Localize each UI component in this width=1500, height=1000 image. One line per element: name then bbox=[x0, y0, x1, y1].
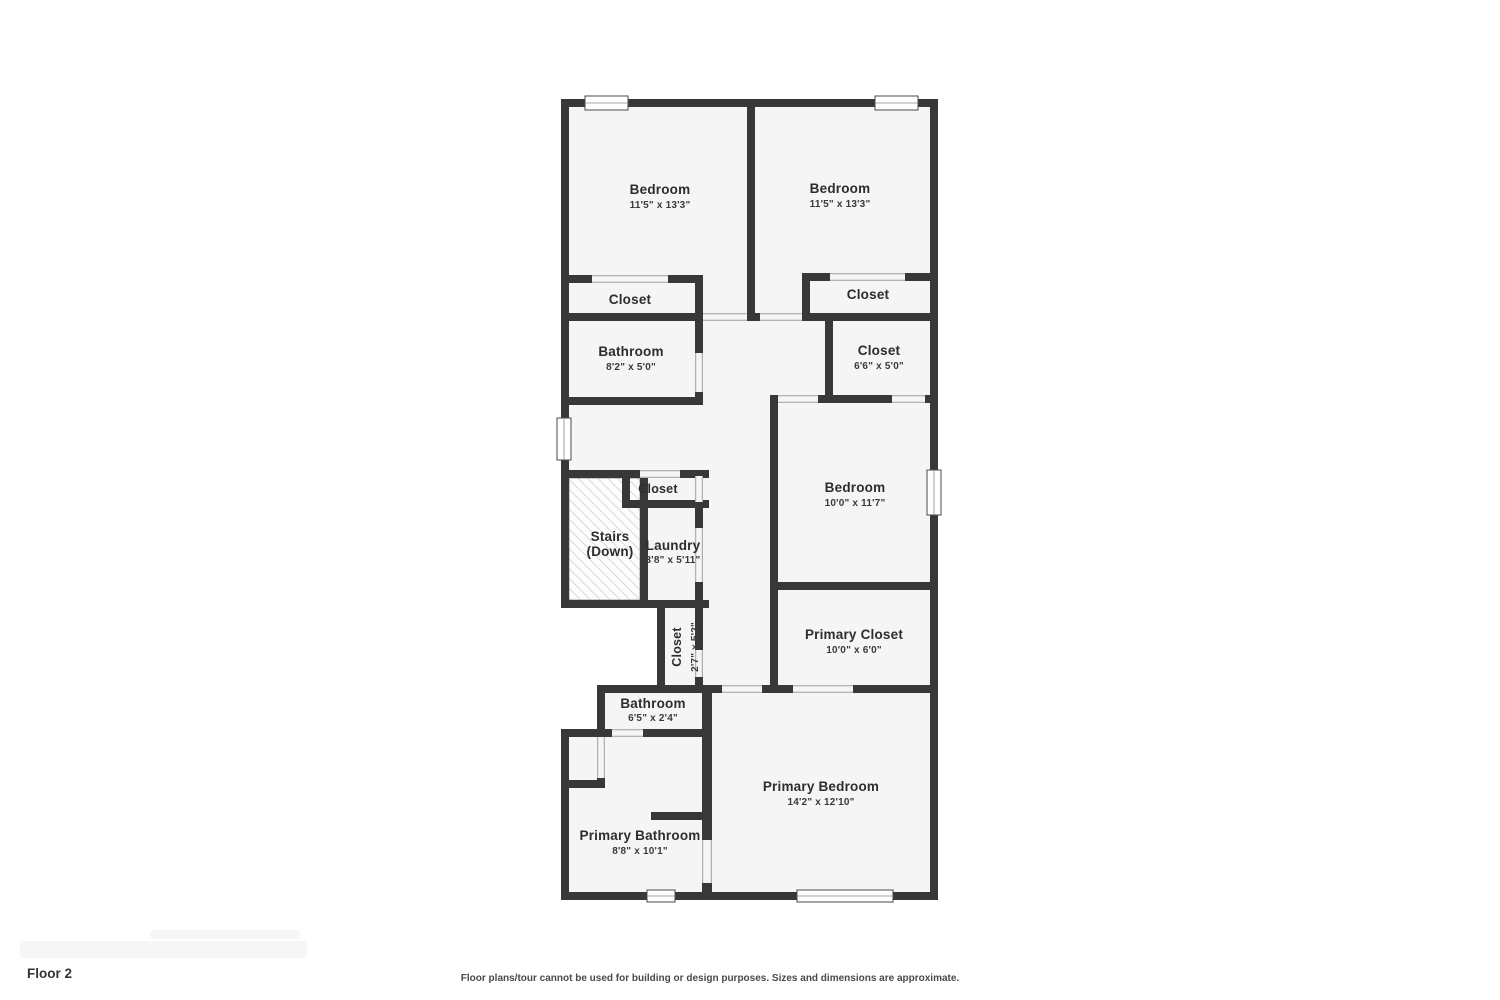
bedroom-top-right-dims: 11'5" x 13'3" bbox=[810, 199, 871, 210]
bedroom-top-left-dims: 11'5" x 13'3" bbox=[630, 200, 691, 211]
laundry-dims: 3'8" x 5'11" bbox=[645, 555, 700, 566]
bedroom-top-left-label: Bedroom bbox=[630, 182, 691, 197]
primary-bathroom-label: Primary Bathroom bbox=[580, 828, 701, 843]
bathroom-small-dims: 6'5" x 2'4" bbox=[628, 713, 678, 724]
closet-hall-label: Closet bbox=[638, 482, 678, 496]
primary-bathroom-dims: 8'8" x 10'1" bbox=[612, 846, 668, 857]
primary-closet-dims: 10'0" x 6'0" bbox=[826, 645, 882, 656]
floorplan-svg: Bedroom 11'5" x 13'3" Bedroom 11'5" x 13… bbox=[0, 0, 1500, 1000]
closet-top-right-label: Closet bbox=[847, 287, 890, 302]
bathroom-upper-dims: 8'2" x 5'0" bbox=[606, 362, 656, 373]
bathroom-upper-label: Bathroom bbox=[598, 344, 663, 359]
bedroom-top-right-label: Bedroom bbox=[810, 181, 871, 196]
closet-vertical-dims: 2'7" x 5'2" bbox=[690, 622, 701, 672]
bedroom-middle-label: Bedroom bbox=[825, 480, 886, 495]
primary-bedroom-dims: 14'2" x 12'10" bbox=[787, 797, 854, 808]
primary-bedroom-label: Primary Bedroom bbox=[763, 779, 879, 794]
closet-vertical-label: Closet bbox=[670, 627, 684, 667]
primary-closet-label: Primary Closet bbox=[805, 627, 903, 642]
closet-mid-right-label: Closet bbox=[858, 343, 901, 358]
laundry-label: Laundry bbox=[646, 538, 701, 553]
bathroom-small-label: Bathroom bbox=[620, 696, 685, 711]
watermark bbox=[20, 941, 307, 958]
stairs-sub: (Down) bbox=[587, 544, 634, 559]
watermark bbox=[150, 930, 300, 939]
stairs-label: Stairs bbox=[591, 529, 630, 544]
closet-top-left-label: Closet bbox=[609, 292, 652, 307]
floorplan-page: Bedroom 11'5" x 13'3" Bedroom 11'5" x 13… bbox=[0, 0, 1500, 1000]
disclaimer-text: Floor plans/tour cannot be used for buil… bbox=[0, 973, 1420, 984]
bedroom-middle-dims: 10'0" x 11'7" bbox=[825, 498, 886, 509]
closet-mid-right-dims: 6'6" x 5'0" bbox=[854, 361, 904, 372]
